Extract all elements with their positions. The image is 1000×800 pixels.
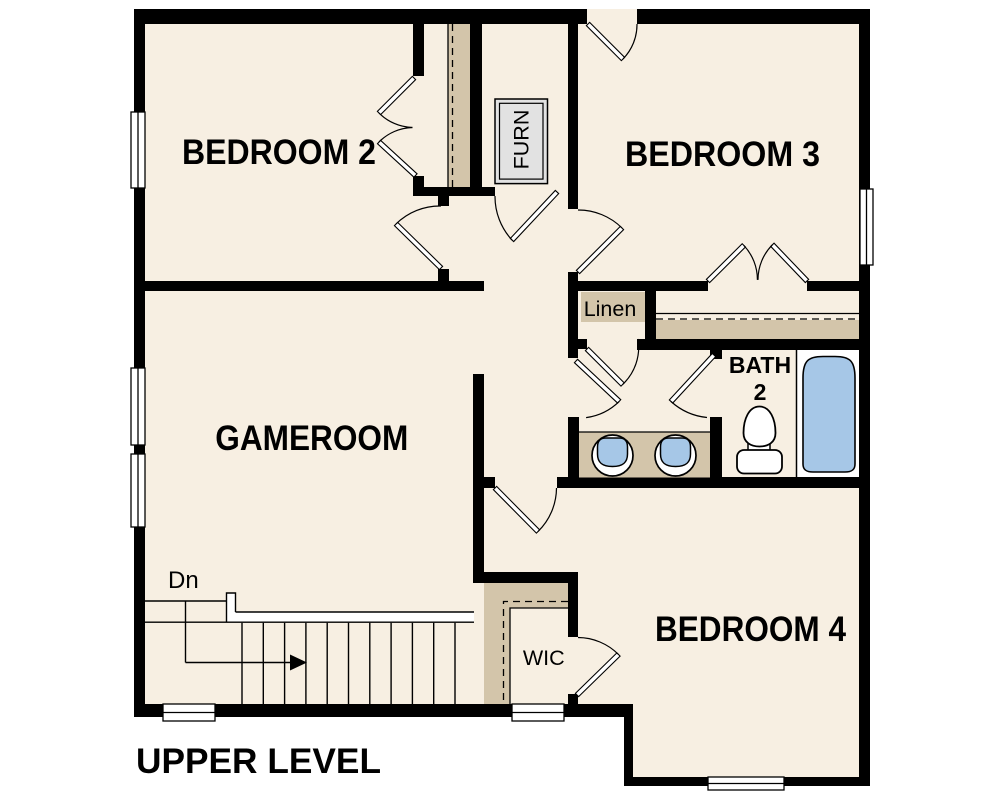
svg-text:UPPER LEVEL: UPPER LEVEL: [136, 742, 381, 781]
svg-text:BEDROOM 2: BEDROOM 2: [182, 133, 376, 172]
svg-text:Dn: Dn: [168, 567, 199, 594]
svg-text:2: 2: [754, 379, 767, 405]
svg-text:Linen: Linen: [584, 297, 637, 321]
svg-text:BEDROOM 3: BEDROOM 3: [625, 135, 820, 174]
svg-text:FURN: FURN: [509, 110, 533, 170]
svg-text:BATH: BATH: [729, 352, 791, 378]
svg-text:BEDROOM 4: BEDROOM 4: [655, 610, 846, 649]
svg-text:WIC: WIC: [523, 646, 565, 670]
svg-text:GAMEROOM: GAMEROOM: [215, 419, 408, 458]
